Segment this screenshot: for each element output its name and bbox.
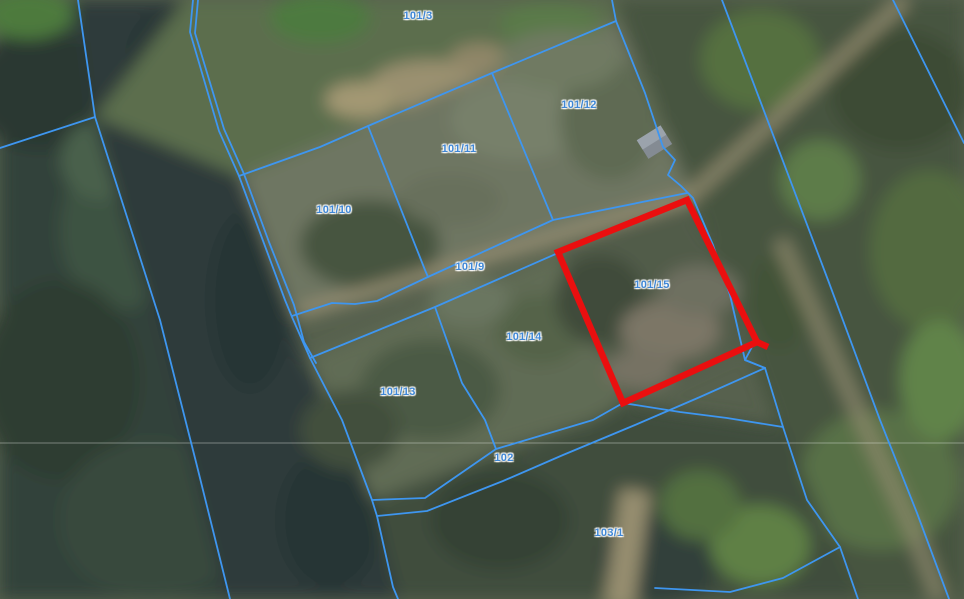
parcel-boundary-lines (0, 0, 964, 599)
cadastral-map-view[interactable]: 101/3101/12101/11101/10101/9101/15101/14… (0, 0, 964, 599)
highlighted-parcel-outline (558, 200, 768, 403)
parcel-boundaries-layer (0, 0, 964, 599)
